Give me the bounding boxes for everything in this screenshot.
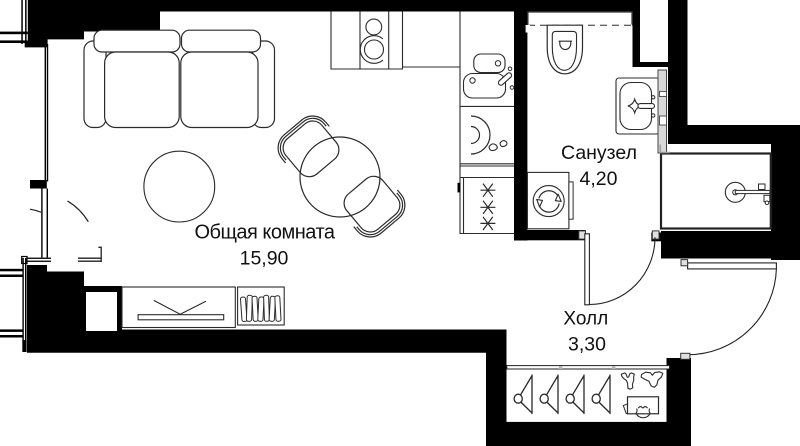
svg-text:Общая комната: Общая комната: [194, 222, 335, 244]
svg-text:15,90: 15,90: [240, 248, 289, 270]
svg-text:Санузел: Санузел: [561, 142, 637, 164]
svg-text:Холл: Холл: [563, 309, 608, 330]
svg-text:4,20: 4,20: [580, 168, 618, 190]
svg-text:3,30: 3,30: [568, 334, 606, 356]
